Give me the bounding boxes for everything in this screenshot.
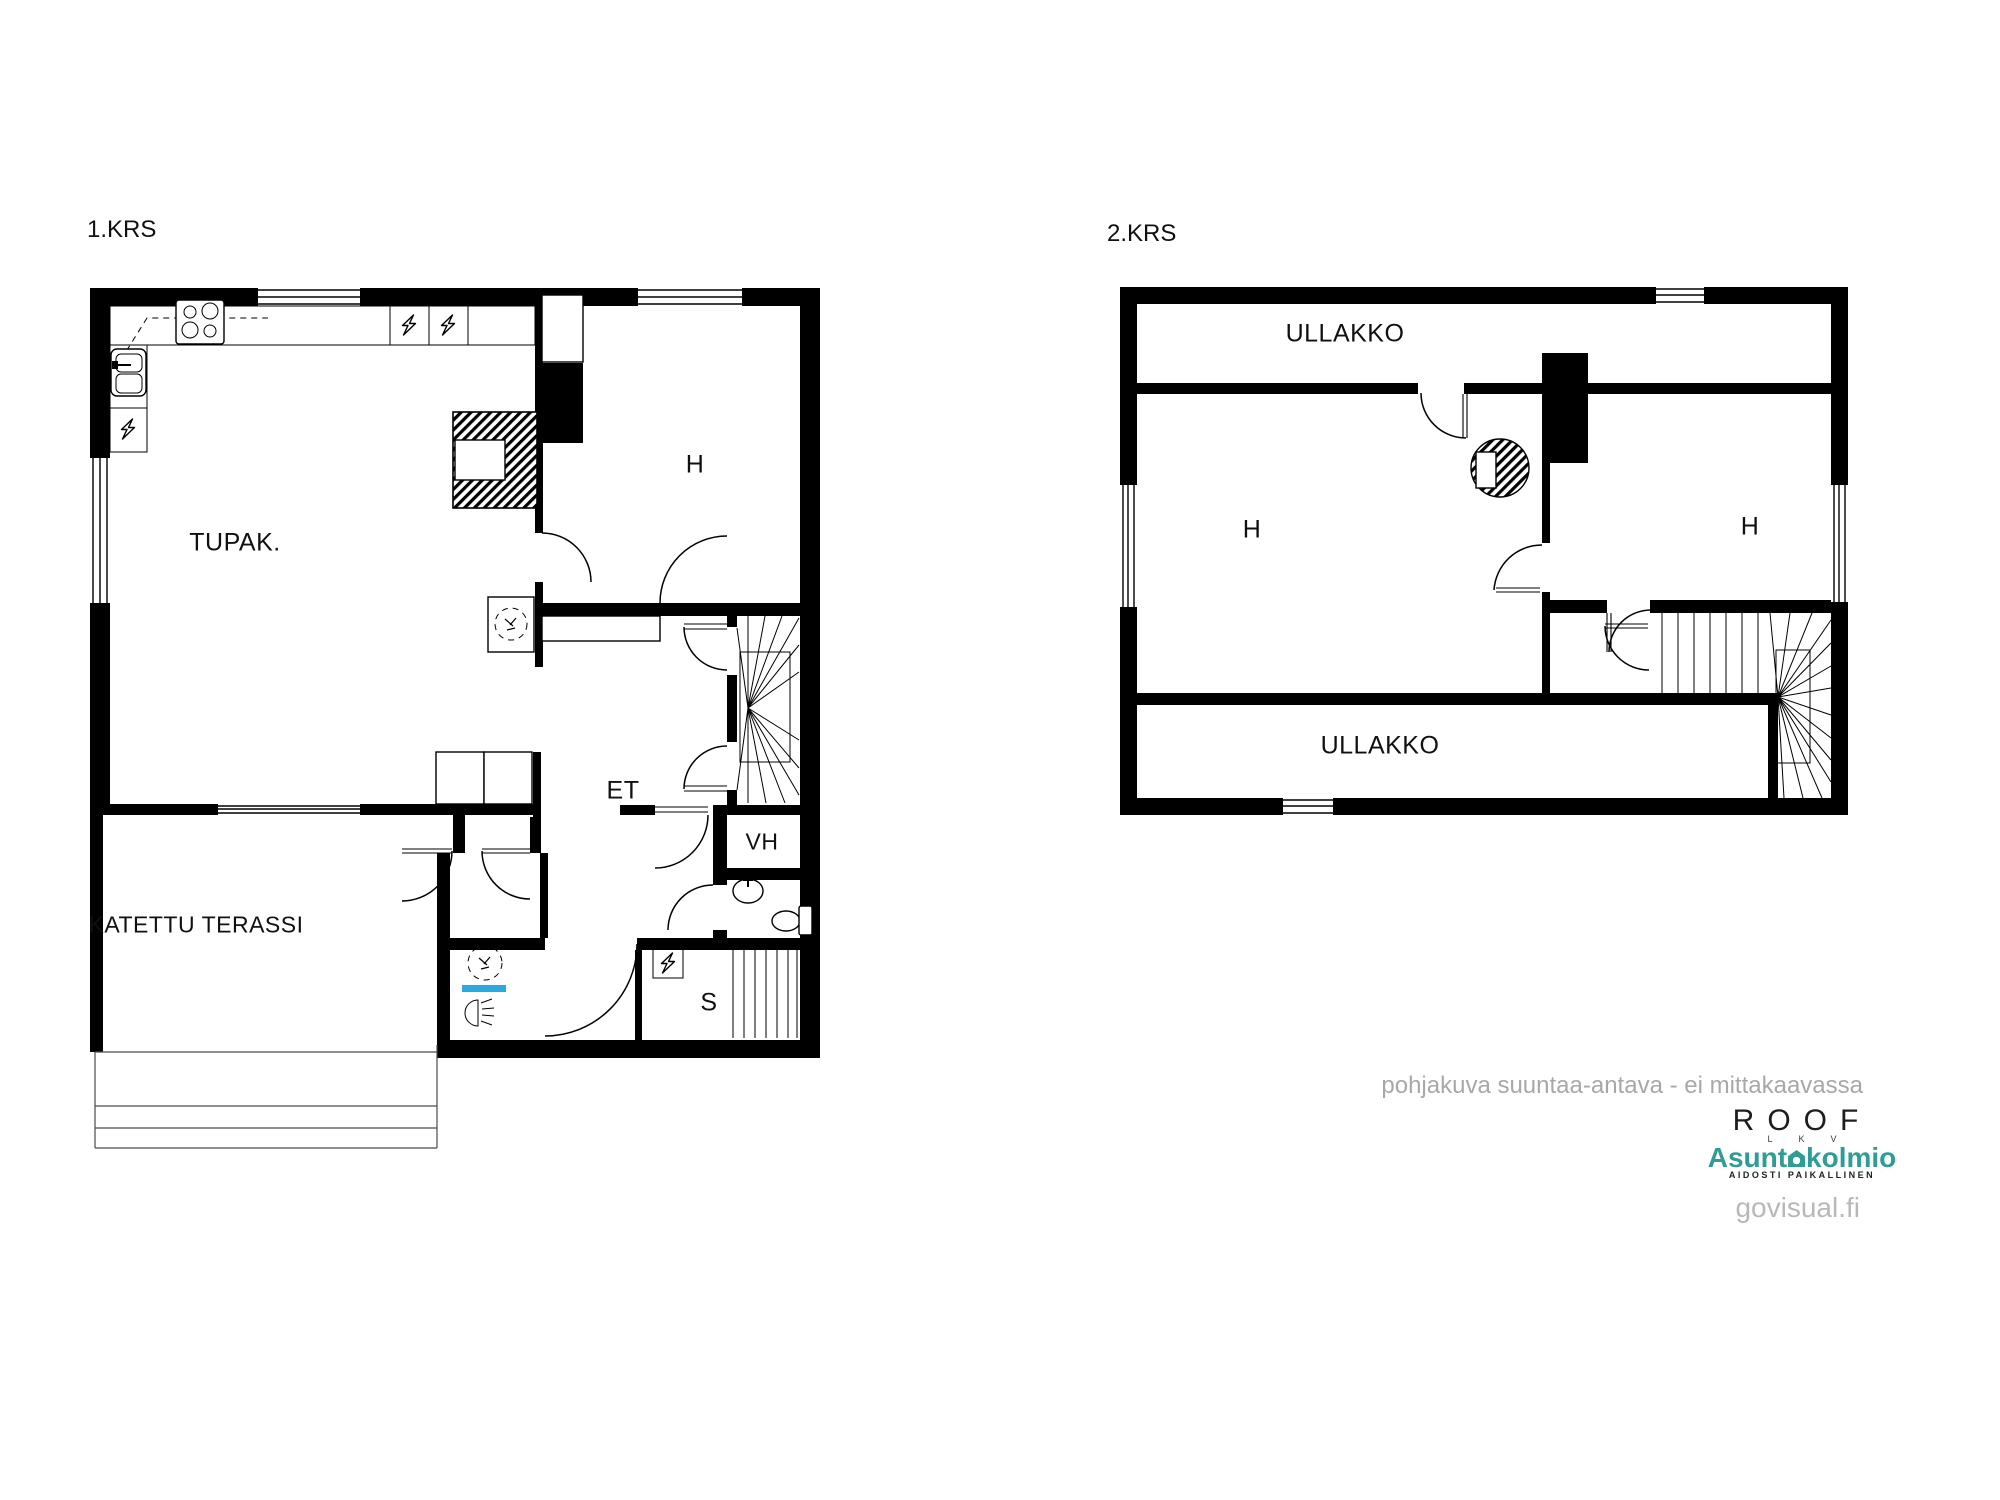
brand-suffix: kolmio xyxy=(1806,1142,1896,1173)
floor1-windows xyxy=(90,288,742,815)
floor2-doors xyxy=(1421,393,1651,670)
room-label-h-floor1: H xyxy=(686,451,705,480)
floor2-walls xyxy=(1120,287,1848,815)
wardrobe xyxy=(436,752,532,804)
roof-lkv-logo: ROOF xyxy=(1712,1104,1892,1138)
appliance-bolt-icons xyxy=(110,306,468,452)
floor1-walls xyxy=(90,288,820,1058)
brand-prefix: Asunt xyxy=(1708,1142,1787,1173)
floor1-title: 1.KRS xyxy=(87,216,156,244)
chimney-block-floor2 xyxy=(1542,353,1588,463)
room-label-ullakko-top: ULLAKKO xyxy=(1286,320,1405,349)
closet-h-room xyxy=(542,295,583,362)
shower-accent-line xyxy=(462,985,506,992)
room-label-terrace: KATETTU TERASSI xyxy=(89,912,304,939)
govisual-watermark: govisual.fi xyxy=(1735,1192,1860,1224)
room-label-h-floor2-left: H xyxy=(1243,516,1262,545)
brand-house-icon xyxy=(1788,1150,1805,1167)
sauna-benches xyxy=(733,950,797,1038)
floor1-plan xyxy=(90,288,820,1148)
chimney-block-floor1 xyxy=(537,363,583,443)
room-label-et: ET xyxy=(607,777,640,806)
ventilation-fan-icon xyxy=(488,597,534,652)
floor2-title: 2.KRS xyxy=(1107,220,1176,248)
floorplan-drawing xyxy=(0,0,2000,1500)
floorplan-page: 1.KRS 2.KRS TUPAK. H ET VH S KATETTU TER… xyxy=(0,0,2000,1500)
floor2-plan xyxy=(1120,287,1848,815)
floor2-windows xyxy=(1120,287,1848,815)
washbasin-icon xyxy=(733,876,763,903)
room-label-h-floor2-right: H xyxy=(1741,513,1760,542)
fireplace xyxy=(453,412,537,508)
chimney-flue xyxy=(1471,439,1529,497)
room-label-tupak: TUPAK. xyxy=(189,529,280,558)
staircase-floor2 xyxy=(1662,613,1831,798)
room-label-ullakko-bottom: ULLAKKO xyxy=(1321,732,1440,761)
toilet-icon xyxy=(772,906,812,935)
staircase-floor1 xyxy=(737,616,799,803)
bathroom-fan-icon xyxy=(468,946,502,980)
sauna-heater-icon xyxy=(653,948,683,978)
closet-et xyxy=(542,616,660,641)
room-label-vh: VH xyxy=(746,829,779,856)
disclaimer-note: pohjakuva suuntaa-antava - ei mittakaava… xyxy=(1381,1072,1863,1100)
stove-icon xyxy=(176,300,224,344)
shower-icon xyxy=(465,999,494,1026)
room-label-sauna: S xyxy=(700,989,717,1018)
brand-tagline: AIDOSTI PAIKALLINEN xyxy=(1682,1170,1922,1180)
kitchen-sink-icon xyxy=(111,349,146,396)
terrace-steps xyxy=(95,1045,437,1148)
